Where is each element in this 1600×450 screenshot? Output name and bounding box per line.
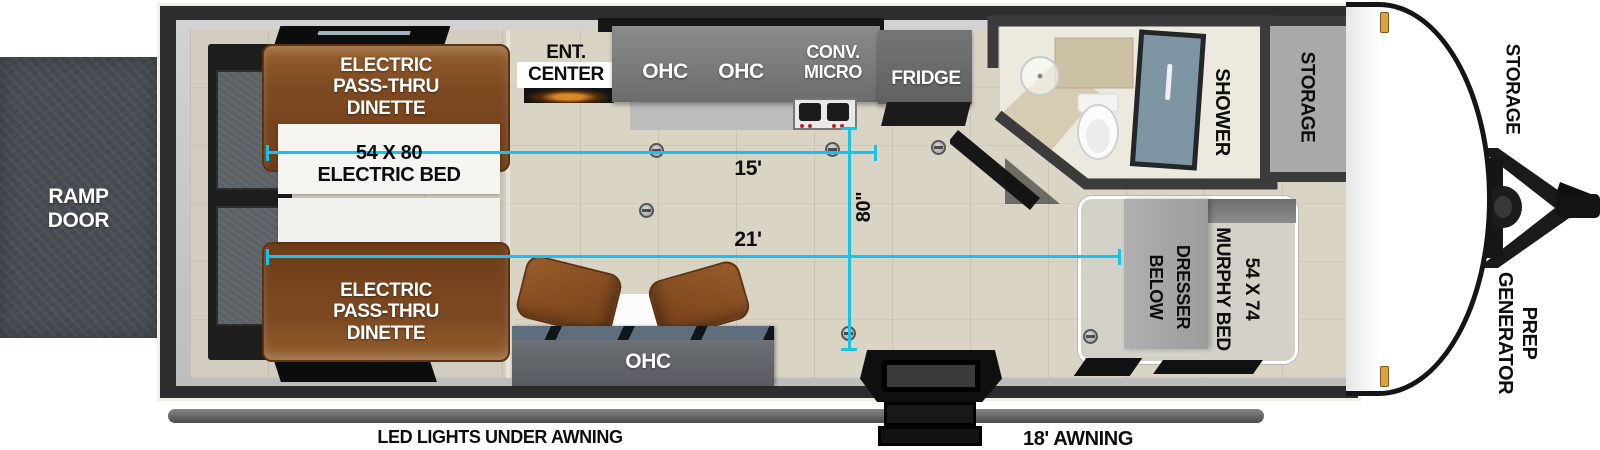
ohc-living-label: OHC bbox=[613, 350, 683, 374]
dim-tick bbox=[841, 127, 857, 130]
living-ohc-top bbox=[512, 326, 774, 340]
shower-label: SHOWER bbox=[1211, 68, 1233, 156]
storage-pass-thru-label: STORAGE bbox=[1501, 44, 1522, 135]
range-cooktop bbox=[793, 98, 857, 130]
led-lights-label: LED LIGHTS UNDER AWNING bbox=[377, 427, 622, 447]
fridge-label: FRIDGE bbox=[886, 68, 966, 89]
ohc-kitchen-left-label: OHC bbox=[630, 60, 700, 84]
tie-down-anchor bbox=[1083, 329, 1098, 344]
entry-step-low bbox=[878, 426, 982, 446]
front-cap bbox=[1346, 2, 1492, 396]
generator-label: GENERATOR bbox=[1494, 272, 1516, 394]
dim-tick bbox=[1118, 249, 1121, 265]
entry-door-shadow bbox=[1005, 158, 1060, 204]
fireplace bbox=[524, 88, 614, 103]
generator-prep-label: PREP bbox=[1518, 307, 1540, 360]
dim-15ft-label: 15' bbox=[734, 157, 761, 181]
shower-enclosure bbox=[1132, 32, 1203, 168]
range-knob-1 bbox=[800, 124, 804, 128]
floorplan: RAMP DOOR bbox=[0, 0, 1600, 450]
garage-bed-label: 54 X 80 ELECTRIC BED bbox=[278, 142, 500, 187]
tie-down-anchor bbox=[931, 140, 946, 155]
tongue-jack-hub bbox=[1494, 196, 1512, 218]
bed-rail-right bbox=[1153, 360, 1263, 374]
marker-light-top bbox=[1380, 12, 1389, 33]
dim-tick bbox=[266, 249, 269, 265]
tv-screen bbox=[317, 31, 410, 35]
vanity-counter bbox=[1055, 38, 1133, 88]
entry-steps-recess bbox=[882, 360, 980, 392]
dim-tick bbox=[266, 145, 269, 161]
ohc-kitchen-right-label: OHC bbox=[706, 60, 776, 84]
dim-21ft-label: 21' bbox=[734, 228, 761, 252]
range-knob-2 bbox=[808, 124, 812, 128]
range-knob-3 bbox=[832, 124, 836, 128]
dim-tick bbox=[874, 145, 877, 161]
murphy-bed-label: 54 X 74 MURPHY BED bbox=[1208, 227, 1266, 350]
storage-front-label: STORAGE bbox=[1296, 52, 1317, 143]
entry-step-mid bbox=[884, 402, 976, 426]
marker-light-bottom bbox=[1380, 366, 1389, 387]
toilet-bowl bbox=[1086, 119, 1110, 153]
dim-tick bbox=[841, 348, 857, 351]
burner-right bbox=[827, 103, 849, 121]
awning-bar bbox=[168, 409, 1264, 423]
awning-label: 18' AWNING bbox=[1023, 428, 1133, 450]
dim-80in-label: 80" bbox=[853, 192, 875, 223]
conv-micro-label: CONV. MICRO bbox=[793, 42, 873, 82]
dresser-label: DRESSER BELOW bbox=[1142, 245, 1196, 329]
tie-down-anchor bbox=[825, 142, 840, 157]
ent-center-label: ENT. CENTER bbox=[506, 42, 626, 86]
dinette-bottom-label: ELECTRIC PASS-THRU DINETTE bbox=[264, 280, 508, 344]
tie-down-anchor bbox=[639, 203, 654, 218]
dinette-top-label: ELECTRIC PASS-THRU DINETTE bbox=[264, 55, 508, 119]
ramp-door: RAMP DOOR bbox=[0, 57, 157, 338]
burner-left bbox=[799, 103, 821, 121]
coupler bbox=[1556, 194, 1600, 218]
sink-drain-icon bbox=[1038, 74, 1043, 79]
dim-line-21ft bbox=[268, 255, 1120, 258]
ramp-door-label: RAMP DOOR bbox=[0, 185, 157, 232]
dim-line-80in bbox=[848, 129, 851, 351]
